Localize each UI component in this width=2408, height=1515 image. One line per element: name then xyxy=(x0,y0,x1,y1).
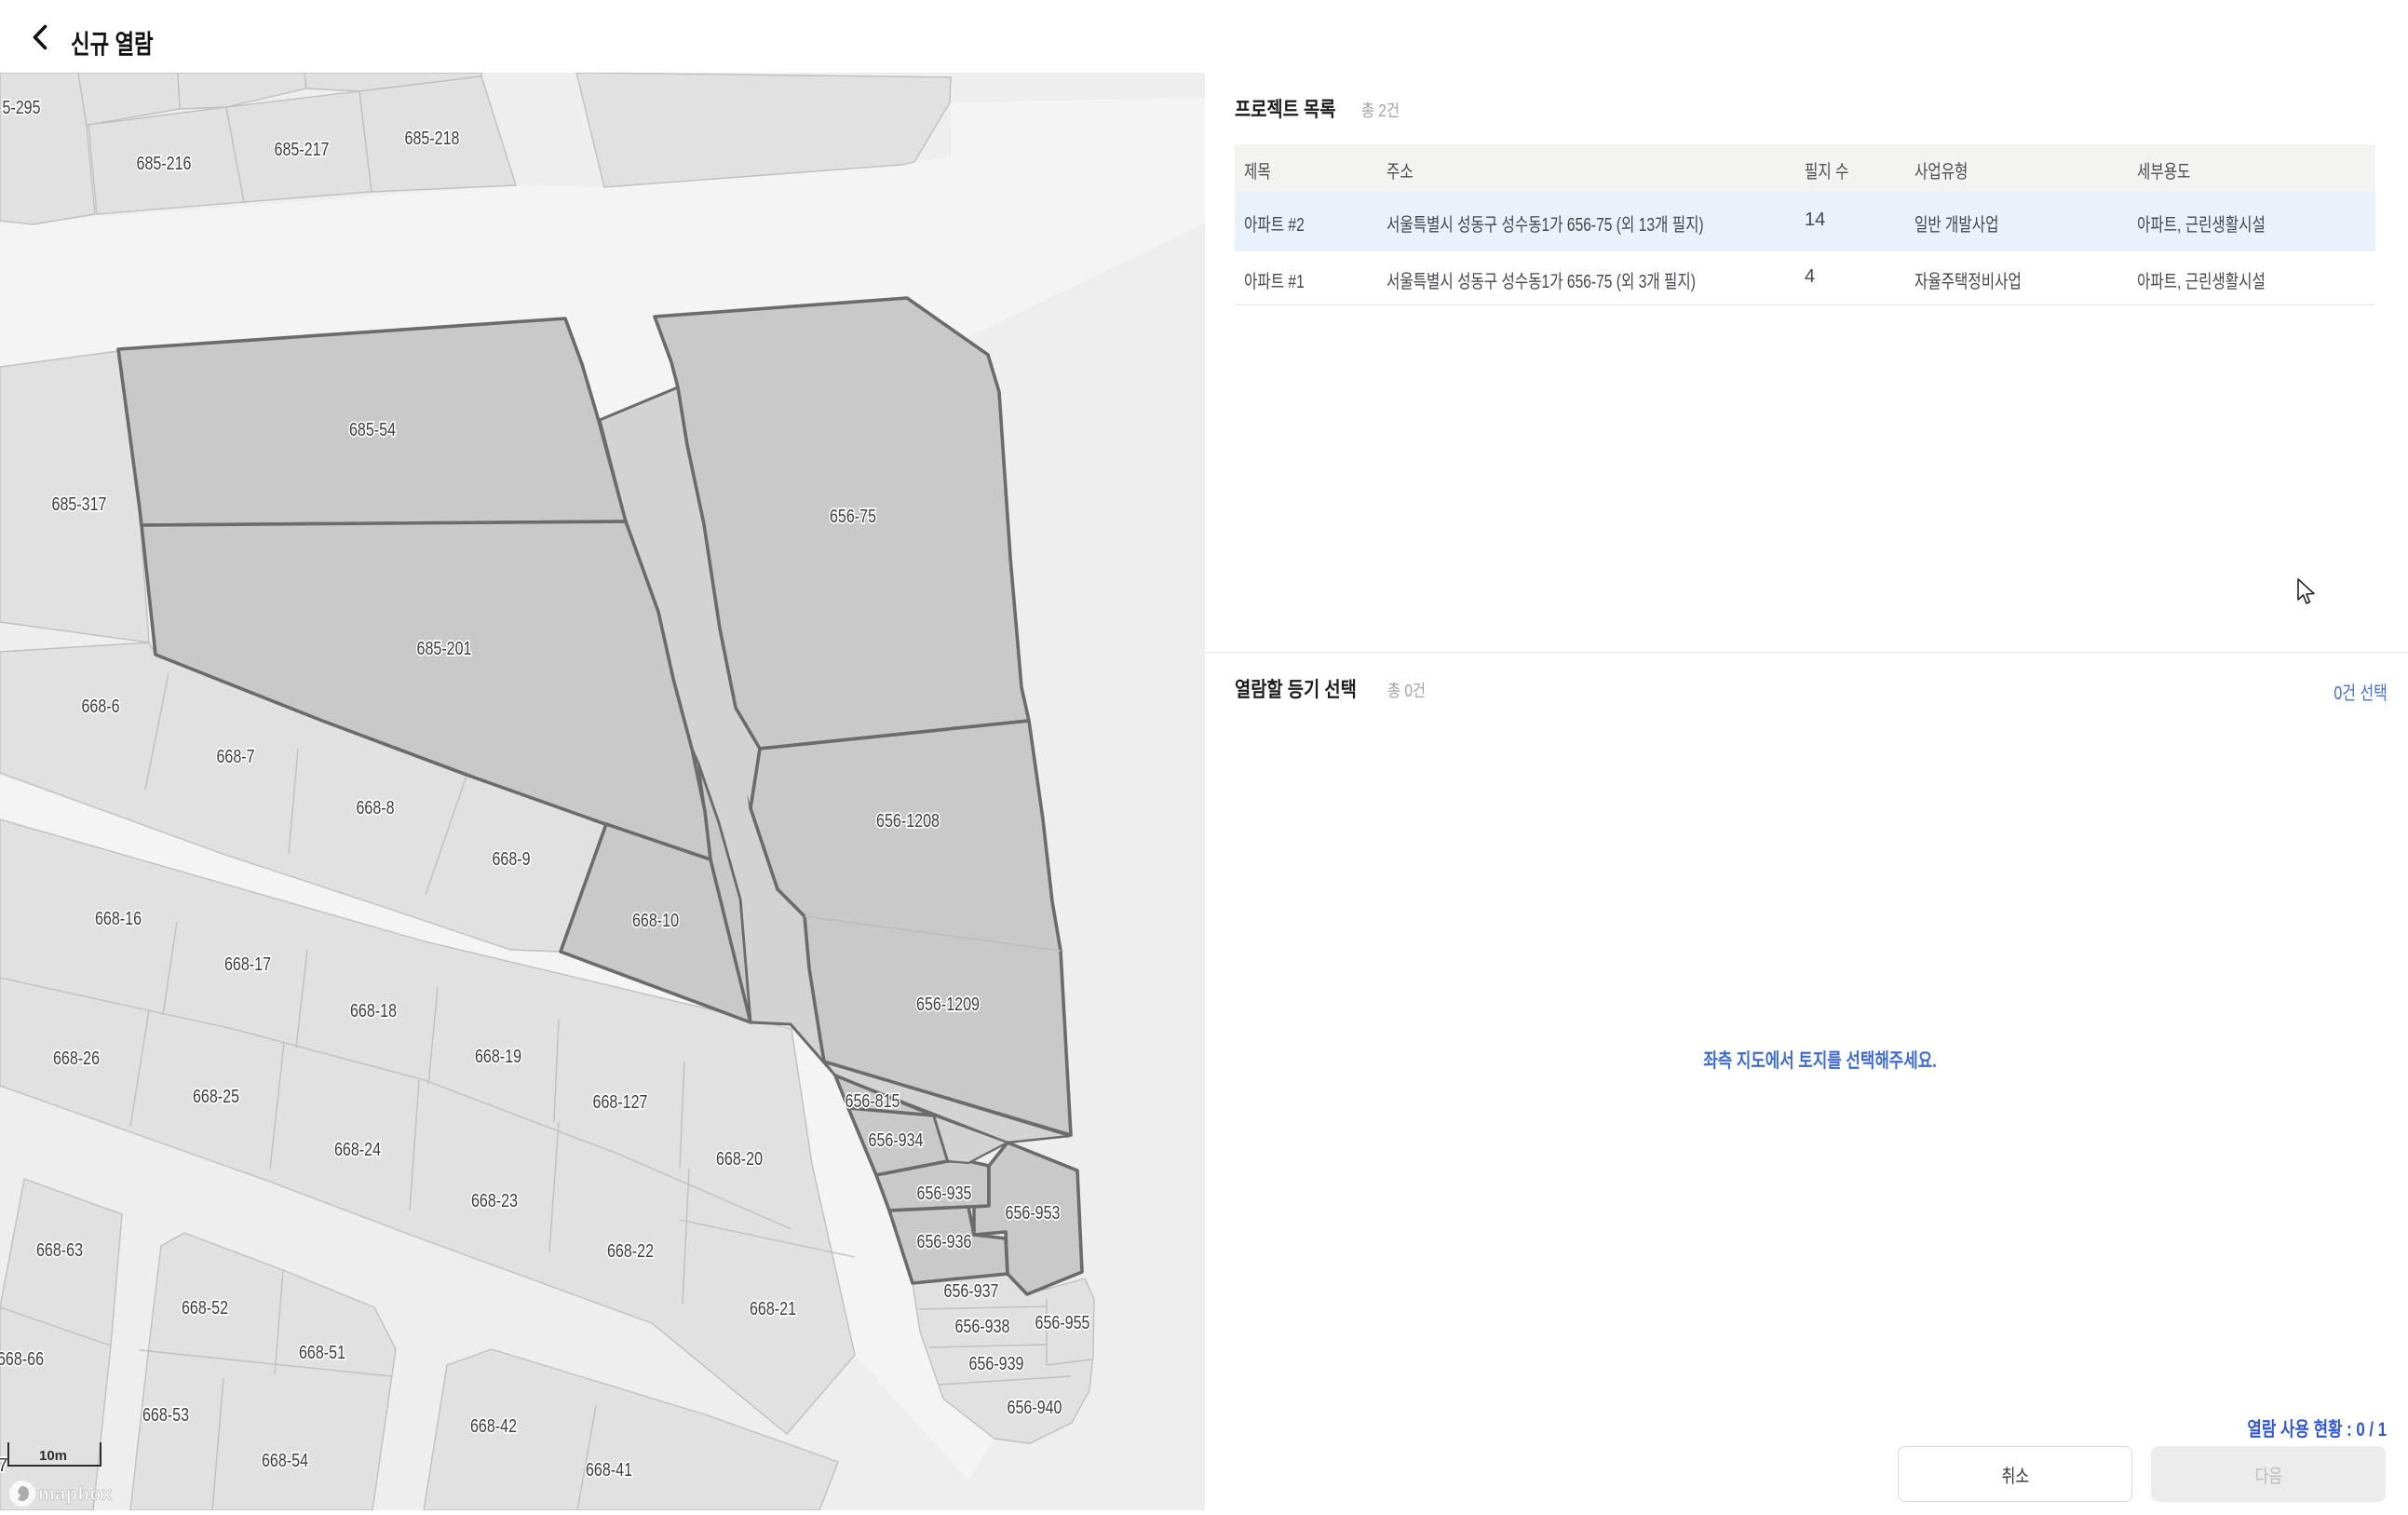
svg-text:685-216: 685-216 xyxy=(137,154,192,174)
svg-text:656-1208: 656-1208 xyxy=(876,811,940,832)
svg-text:668-63: 668-63 xyxy=(36,1240,83,1261)
svg-text:668-22: 668-22 xyxy=(607,1241,654,1262)
svg-text:685-201: 685-201 xyxy=(417,639,472,659)
svg-text:668-25: 668-25 xyxy=(193,1087,239,1107)
svg-text:685-218: 685-218 xyxy=(405,129,460,149)
svg-text:668-24: 668-24 xyxy=(334,1140,381,1160)
svg-text:10m: 10m xyxy=(39,1448,67,1464)
svg-text:668-127: 668-127 xyxy=(593,1092,648,1113)
svg-text:668-42: 668-42 xyxy=(470,1416,517,1437)
svg-text:656-935: 656-935 xyxy=(917,1184,972,1204)
svg-text:668-8: 668-8 xyxy=(357,798,395,818)
svg-text:mapbox: mapbox xyxy=(38,1484,113,1505)
svg-text:656-75: 656-75 xyxy=(830,507,876,527)
svg-text:656-953: 656-953 xyxy=(1006,1203,1061,1224)
svg-text:668-54: 668-54 xyxy=(262,1451,308,1471)
svg-text:668-53: 668-53 xyxy=(142,1405,189,1426)
svg-text:656-1209: 656-1209 xyxy=(916,994,980,1015)
svg-text:656-939: 656-939 xyxy=(969,1354,1024,1374)
svg-text:685-317: 685-317 xyxy=(52,494,107,515)
svg-text:668-9: 668-9 xyxy=(493,849,531,870)
svg-text:668-10: 668-10 xyxy=(632,911,679,931)
svg-text:668-41: 668-41 xyxy=(586,1460,632,1481)
svg-text:685-217: 685-217 xyxy=(275,140,330,160)
svg-text:656-934: 656-934 xyxy=(869,1130,924,1151)
svg-text:685-54: 685-54 xyxy=(349,420,396,440)
svg-text:656-938: 656-938 xyxy=(955,1317,1010,1337)
svg-text:668-17: 668-17 xyxy=(224,954,271,975)
svg-text:7: 7 xyxy=(0,1455,8,1476)
svg-text:668-26: 668-26 xyxy=(53,1048,100,1069)
svg-text:668-19: 668-19 xyxy=(475,1047,521,1067)
svg-text:668-21: 668-21 xyxy=(750,1299,796,1319)
svg-text:668-23: 668-23 xyxy=(471,1191,518,1211)
svg-text:5-295: 5-295 xyxy=(3,98,41,118)
svg-text:668-51: 668-51 xyxy=(299,1343,345,1363)
svg-text:668-18: 668-18 xyxy=(350,1001,397,1021)
svg-text:668-6: 668-6 xyxy=(82,697,120,717)
svg-text:668-66: 668-66 xyxy=(0,1349,44,1370)
svg-text:656-936: 656-936 xyxy=(917,1232,972,1252)
svg-text:668-52: 668-52 xyxy=(182,1298,228,1319)
svg-text:668-16: 668-16 xyxy=(95,909,142,929)
svg-text:656-955: 656-955 xyxy=(1035,1313,1090,1333)
svg-text:668-7: 668-7 xyxy=(217,747,255,767)
svg-text:656-815: 656-815 xyxy=(846,1091,900,1112)
svg-text:656-937: 656-937 xyxy=(944,1281,999,1302)
svg-text:656-940: 656-940 xyxy=(1008,1398,1062,1418)
svg-text:668-20: 668-20 xyxy=(716,1149,763,1170)
